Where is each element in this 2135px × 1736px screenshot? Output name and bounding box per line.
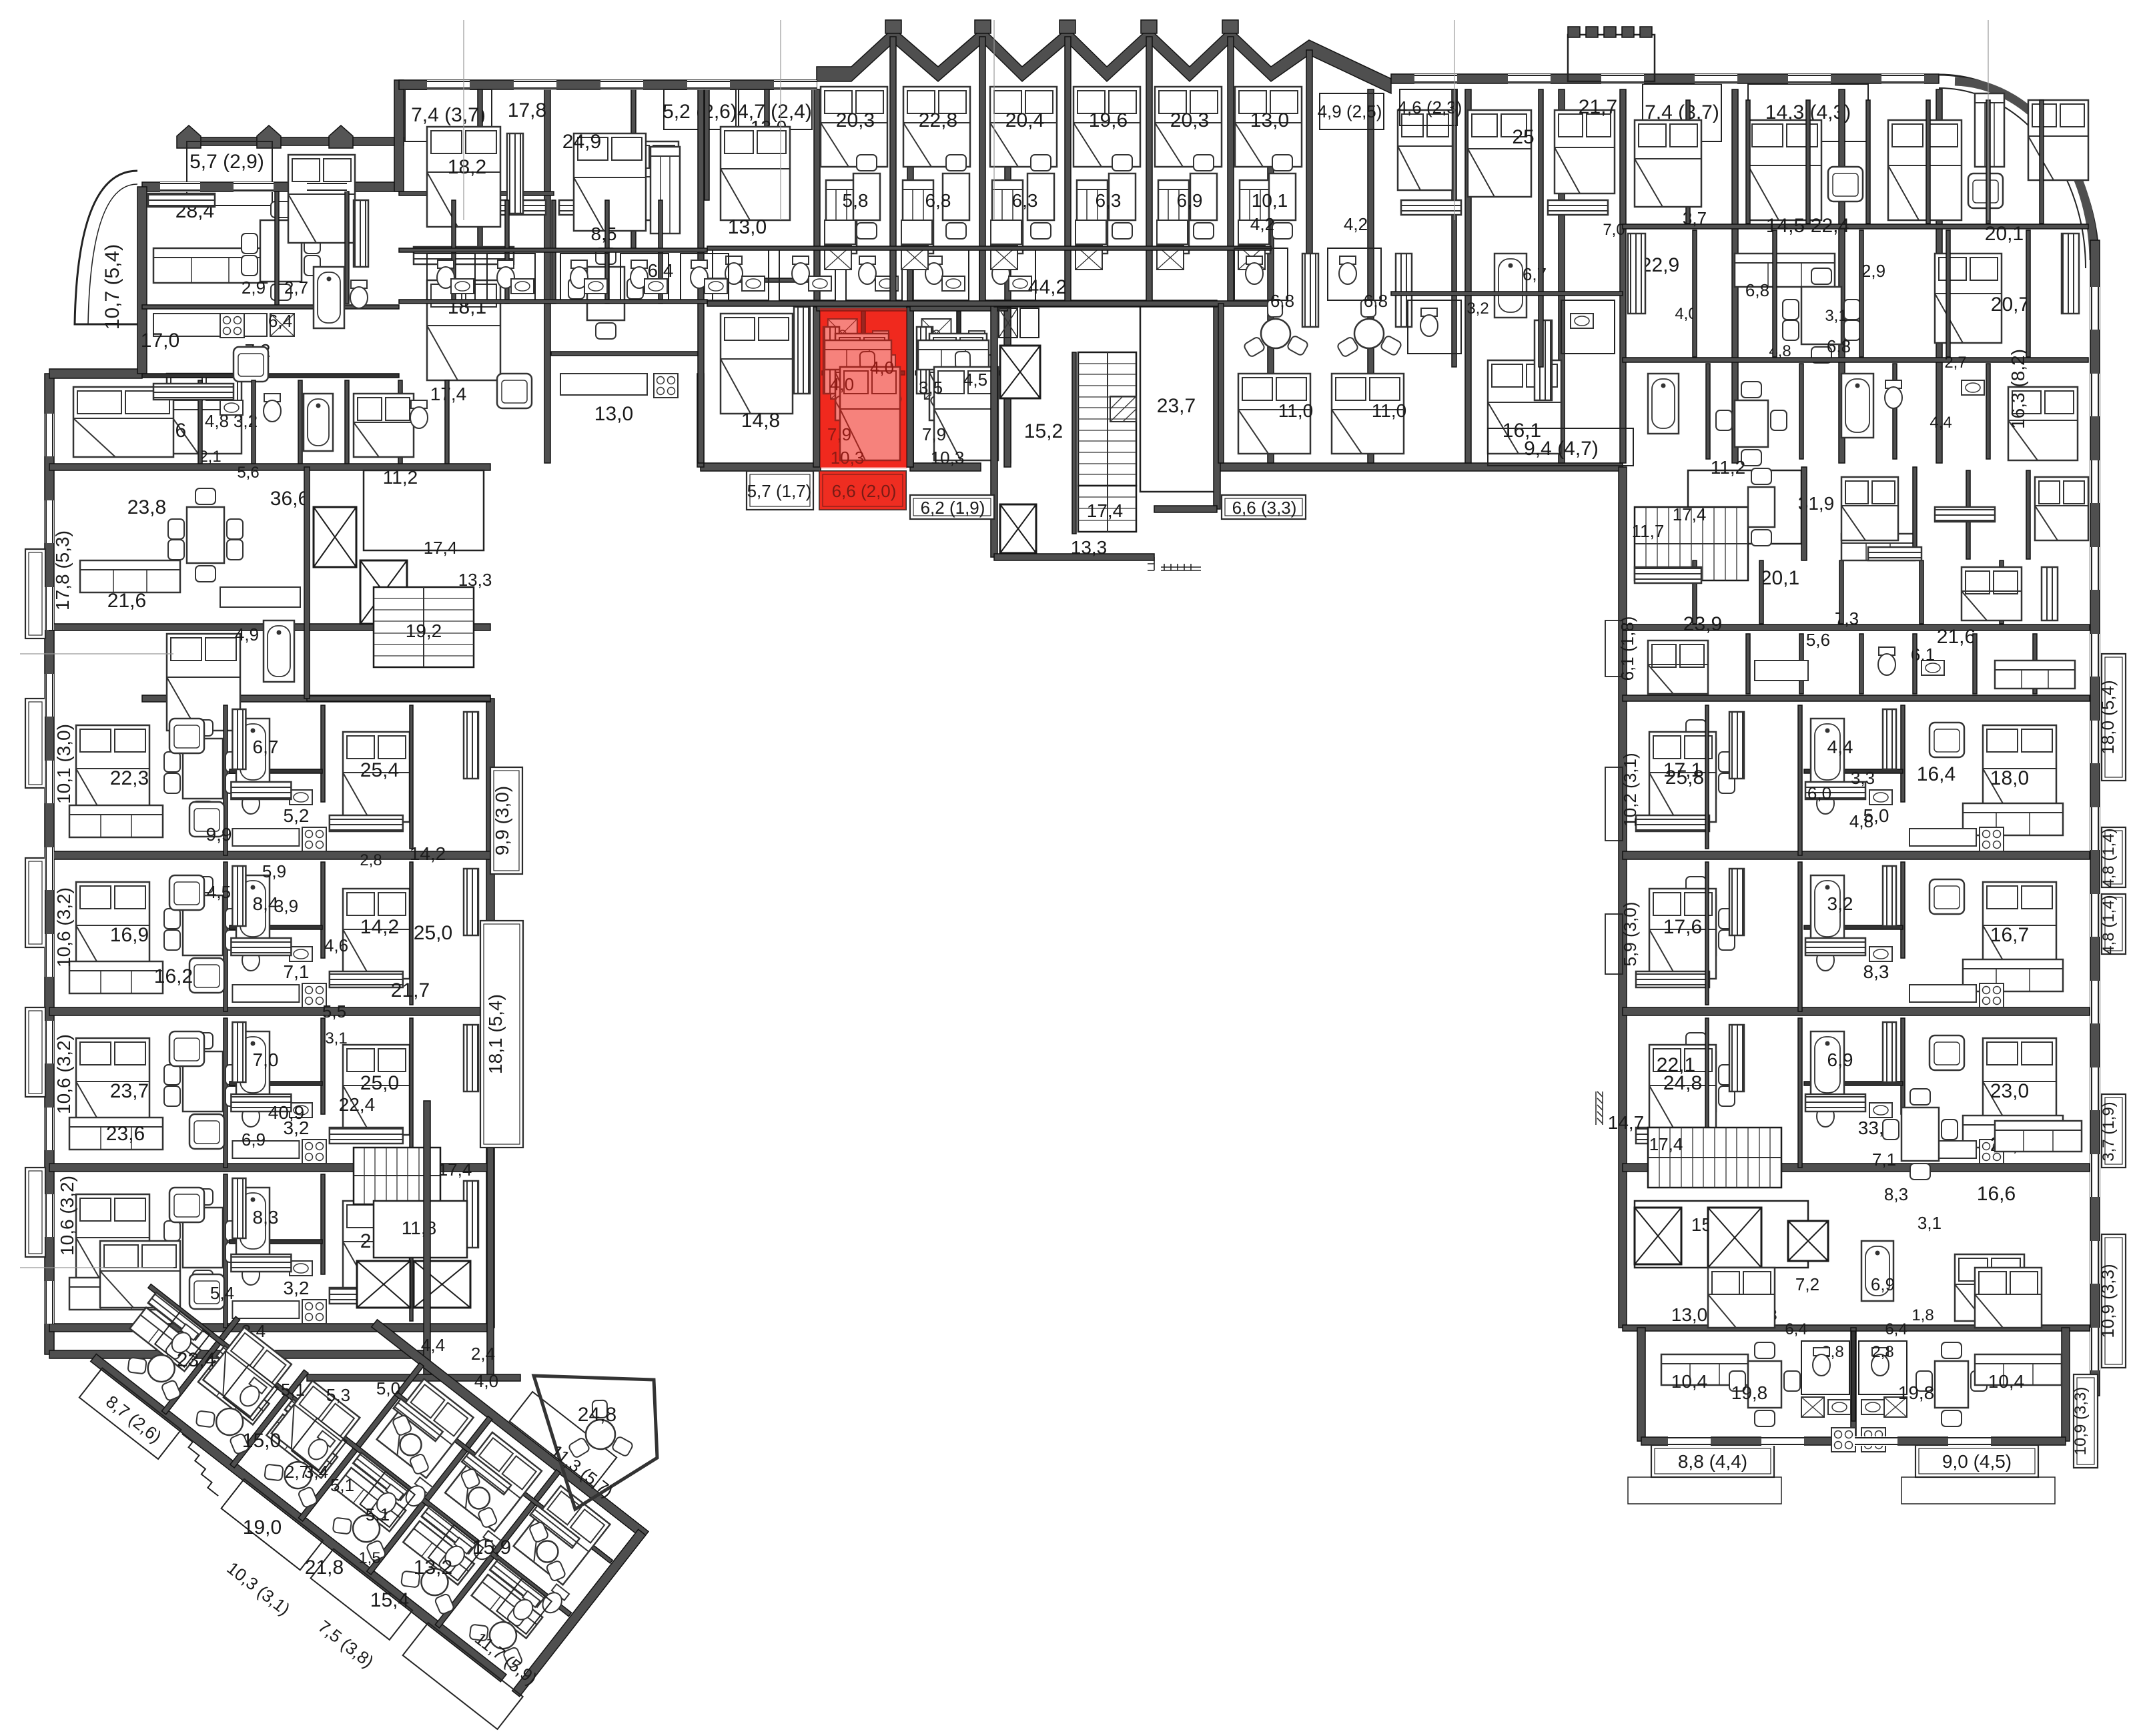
svg-text:21,8: 21,8 [305,1557,344,1579]
svg-text:5,4: 5,4 [210,1283,234,1303]
svg-text:17,8 (5,3): 17,8 (5,3) [52,530,73,610]
svg-text:19,8: 19,8 [1898,1382,1935,1403]
svg-text:5,0: 5,0 [376,1378,400,1398]
svg-text:2,9: 2,9 [242,278,266,298]
svg-text:21,7: 21,7 [1579,96,1617,118]
svg-text:22,8: 22,8 [919,109,957,131]
svg-text:7,3: 7,3 [1835,608,1859,628]
svg-text:3,5: 3,5 [919,378,943,398]
svg-text:10,4: 10,4 [1988,1371,2025,1392]
svg-text:20,1: 20,1 [1985,223,2024,245]
svg-text:36,6: 36,6 [270,488,309,510]
svg-text:6,8: 6,8 [1364,291,1388,311]
svg-text:6,8: 6,8 [1827,336,1851,356]
svg-text:10,6 (3,2): 10,6 (3,2) [53,1034,74,1114]
svg-text:20,1: 20,1 [1761,567,1799,589]
svg-text:25,8: 25,8 [1665,767,1704,789]
svg-text:13,3: 13,3 [1071,537,1108,558]
svg-text:4,6 (2,3): 4,6 (2,3) [1398,97,1462,117]
svg-text:3,9: 3,9 [274,896,298,916]
svg-text:7,0: 7,0 [253,1049,279,1070]
svg-text:5,6: 5,6 [1806,630,1830,650]
svg-text:9,4 (4,7): 9,4 (4,7) [1524,438,1599,460]
svg-text:4,9: 4,9 [235,624,259,644]
svg-text:4,8 (1,4): 4,8 (1,4) [2100,828,2118,887]
svg-text:10,6 (3,2): 10,6 (3,2) [57,1176,77,1256]
svg-text:5,7 (2,9): 5,7 (2,9) [189,151,264,173]
svg-text:4,8 (1,4): 4,8 (1,4) [2100,895,2118,954]
svg-text:5,3: 5,3 [326,1385,350,1405]
svg-text:10,3: 10,3 [931,448,965,468]
svg-text:18,2: 18,2 [448,156,486,178]
svg-text:6,8: 6,8 [925,190,951,211]
svg-text:3,3: 3,3 [1851,768,1875,788]
svg-text:17,4: 17,4 [424,538,458,558]
svg-text:23,6: 23,6 [106,1123,145,1145]
svg-text:23,0: 23,0 [1990,1080,2029,1102]
svg-text:6,4: 6,4 [268,311,292,331]
svg-text:3,2: 3,2 [284,1278,310,1298]
svg-text:4,4: 4,4 [1930,414,1952,432]
svg-text:19,0: 19,0 [243,1516,282,1539]
svg-text:21,6: 21,6 [107,590,146,612]
svg-text:6,2 (1,9): 6,2 (1,9) [921,498,985,518]
svg-text:10,1 (3,0): 10,1 (3,0) [53,724,74,804]
svg-text:5,6: 5,6 [237,464,259,482]
svg-text:40,9: 40,9 [268,1102,305,1123]
svg-text:11,2: 11,2 [1711,457,1745,478]
svg-text:6,4: 6,4 [1885,1320,1907,1338]
svg-text:4,6: 4,6 [324,935,348,955]
svg-text:2,9: 2,9 [1861,261,1885,281]
svg-text:7,0: 7,0 [1603,221,1625,239]
svg-text:4,0: 4,0 [474,1371,498,1391]
svg-text:6,0: 6,0 [1807,783,1831,803]
svg-text:17,4: 17,4 [438,1160,472,1180]
svg-text:3,1: 3,1 [1825,307,1847,325]
svg-text:23,7: 23,7 [1157,395,1196,417]
svg-text:11,0: 11,0 [1372,400,1406,421]
svg-text:2,7: 2,7 [284,278,308,298]
svg-text:3,7 (1,9): 3,7 (1,9) [2100,1102,2118,1161]
svg-text:24,9: 24,9 [562,131,601,153]
svg-text:17,0: 17,0 [141,330,179,352]
svg-text:22,4: 22,4 [339,1094,376,1115]
svg-text:11,2: 11,2 [383,467,418,488]
svg-text:3,1: 3,1 [1917,1213,1942,1233]
svg-text:7,1: 7,1 [284,961,310,982]
svg-text:25: 25 [1512,126,1534,148]
svg-text:10,2 (3,1): 10,2 (3,1) [1620,753,1640,827]
svg-text:13,0: 13,0 [1671,1304,1708,1325]
svg-text:7,2: 7,2 [1795,1274,1819,1294]
svg-text:4,5: 4,5 [207,882,231,902]
svg-text:15,2: 15,2 [1024,420,1063,442]
svg-text:6,3: 6,3 [1012,190,1038,211]
svg-text:13,0: 13,0 [594,403,633,425]
svg-text:16,4: 16,4 [1917,763,1956,785]
svg-text:13,2: 13,2 [414,1557,452,1579]
svg-text:3,4: 3,4 [304,1462,328,1482]
svg-text:5,7 (1,7): 5,7 (1,7) [747,481,812,501]
svg-text:4,8: 4,8 [1849,811,1873,831]
svg-text:5,1: 5,1 [330,1475,354,1495]
svg-text:20,4: 20,4 [1005,109,1044,131]
svg-text:16,7: 16,7 [1990,924,2029,946]
svg-text:15,4: 15,4 [370,1589,409,1611]
svg-text:13,3: 13,3 [458,570,492,590]
svg-text:18,1 (5,4): 18,1 (5,4) [485,994,506,1074]
svg-text:17,4: 17,4 [1649,1134,1683,1154]
svg-text:16,2: 16,2 [154,965,193,987]
svg-text:23,7: 23,7 [110,1080,149,1102]
svg-text:23,4: 23,4 [177,1349,216,1371]
svg-text:1,8: 1,8 [1911,1306,1934,1324]
svg-text:7,1: 7,1 [1872,1150,1896,1170]
svg-text:3,2: 3,2 [1827,893,1853,914]
svg-text:11,8: 11,8 [402,1218,436,1238]
svg-text:17,4: 17,4 [1673,504,1707,524]
svg-text:19,8: 19,8 [1731,1382,1768,1403]
svg-text:5,9 (3,0): 5,9 (3,0) [1620,902,1640,967]
svg-text:2,8: 2,8 [360,851,382,869]
svg-text:44,2: 44,2 [1028,276,1067,298]
svg-text:6,4: 6,4 [1785,1320,1807,1338]
svg-text:8,8 (4,4): 8,8 (4,4) [1678,1451,1747,1472]
svg-text:22,3: 22,3 [110,767,149,789]
svg-text:4,2: 4,2 [1344,214,1368,234]
svg-text:5,2: 5,2 [284,805,310,826]
svg-text:18,0 (5,4): 18,0 (5,4) [2098,680,2118,754]
svg-text:8,5: 8,5 [591,224,617,244]
svg-text:6,9: 6,9 [242,1130,266,1150]
svg-text:15,9: 15,9 [472,1537,511,1559]
svg-text:16,3 (8,2): 16,3 (8,2) [2008,349,2028,429]
svg-text:4,5: 4,5 [963,370,987,390]
svg-text:10,7 (5,4): 10,7 (5,4) [101,244,123,330]
svg-text:25,0: 25,0 [414,922,452,944]
svg-text:14,2: 14,2 [410,843,446,864]
svg-text:3,2: 3,2 [1466,300,1488,318]
svg-text:16,6: 16,6 [1977,1183,2016,1205]
svg-text:22,9: 22,9 [1641,254,1679,276]
svg-text:22,1: 22,1 [1657,1054,1695,1076]
svg-text:17,8: 17,8 [508,99,546,121]
svg-text:5,5: 5,5 [322,1001,346,1021]
svg-text:9,9: 9,9 [206,824,232,845]
svg-text:17,6: 17,6 [1663,916,1702,938]
svg-text:10,1: 10,1 [1252,190,1288,211]
svg-text:10,9 (3,3): 10,9 (3,3) [2072,1387,2090,1456]
svg-text:4,4: 4,4 [1827,737,1853,757]
svg-text:5,1: 5,1 [366,1504,390,1525]
svg-text:21,7: 21,7 [391,979,430,1001]
svg-text:15,0: 15,0 [242,1430,281,1452]
svg-text:13,0: 13,0 [728,216,767,238]
svg-text:6,3: 6,3 [1096,190,1122,211]
svg-text:6,9: 6,9 [1827,1049,1853,1070]
svg-text:13,0: 13,0 [1250,109,1289,131]
svg-text:6,7: 6,7 [253,737,279,757]
svg-text:3,1: 3,1 [325,1029,347,1047]
svg-text:20,3: 20,3 [836,109,875,131]
svg-text:20,7: 20,7 [1991,294,2030,316]
svg-text:4,2: 4,2 [1250,214,1274,234]
svg-text:4,4: 4,4 [421,1335,445,1355]
svg-text:10,6 (3,2): 10,6 (3,2) [53,887,74,967]
svg-text:6,6 (3,3): 6,6 (3,3) [1232,498,1297,518]
svg-text:5,8: 5,8 [843,190,869,211]
svg-text:6,8: 6,8 [1270,291,1294,311]
svg-text:1,5: 1,5 [358,1549,380,1567]
svg-text:18,0: 18,0 [1990,767,2029,789]
svg-text:6,9: 6,9 [1871,1274,1895,1294]
svg-text:21,6: 21,6 [1937,626,1976,648]
svg-text:10,9 (3,3): 10,9 (3,3) [2098,1264,2118,1338]
svg-text:22,4: 22,4 [1811,215,1849,237]
svg-text:4,9 (2,5): 4,9 (2,5) [1318,101,1382,121]
svg-text:7,9: 7,9 [922,424,946,444]
svg-text:11,7: 11,7 [1632,521,1665,541]
svg-text:6,1 (1,8): 6,1 (1,8) [1617,616,1637,681]
svg-text:23,8: 23,8 [127,496,166,518]
svg-text:9,9 (3,0): 9,9 (3,0) [492,786,512,855]
svg-text:10,4: 10,4 [1671,1371,1708,1392]
svg-text:8,3: 8,3 [1884,1184,1908,1204]
svg-text:7,4 (3,7): 7,4 (3,7) [411,104,486,126]
svg-text:25,4: 25,4 [360,759,399,781]
svg-text:17,4: 17,4 [1087,500,1124,521]
svg-text:19,2: 19,2 [406,620,442,641]
svg-text:6,8: 6,8 [1745,280,1769,300]
svg-text:19,6: 19,6 [1089,109,1128,131]
svg-text:24,8: 24,8 [578,1404,616,1426]
svg-text:5,1: 5,1 [281,1380,305,1400]
svg-text:6,9: 6,9 [1177,190,1203,211]
svg-text:25,0: 25,0 [360,1072,399,1094]
svg-text:8,3: 8,3 [1863,961,1889,982]
svg-text:20,3: 20,3 [1170,109,1209,131]
svg-text:14,5: 14,5 [1766,215,1805,237]
svg-text:14,2: 14,2 [360,916,399,938]
svg-text:14,8: 14,8 [741,410,780,432]
svg-text:2,4: 2,4 [471,1344,495,1364]
svg-text:16,9: 16,9 [110,924,149,946]
svg-text:5,9: 5,9 [262,861,286,881]
svg-text:9,0 (4,5): 9,0 (4,5) [1942,1451,2012,1472]
svg-text:23,9: 23,9 [1683,613,1722,635]
svg-text:8,3: 8,3 [253,1207,279,1228]
svg-text:2,8: 2,8 [1871,1343,1893,1361]
svg-text:14,7: 14,7 [1608,1112,1645,1133]
svg-text:11,0: 11,0 [1278,400,1313,421]
